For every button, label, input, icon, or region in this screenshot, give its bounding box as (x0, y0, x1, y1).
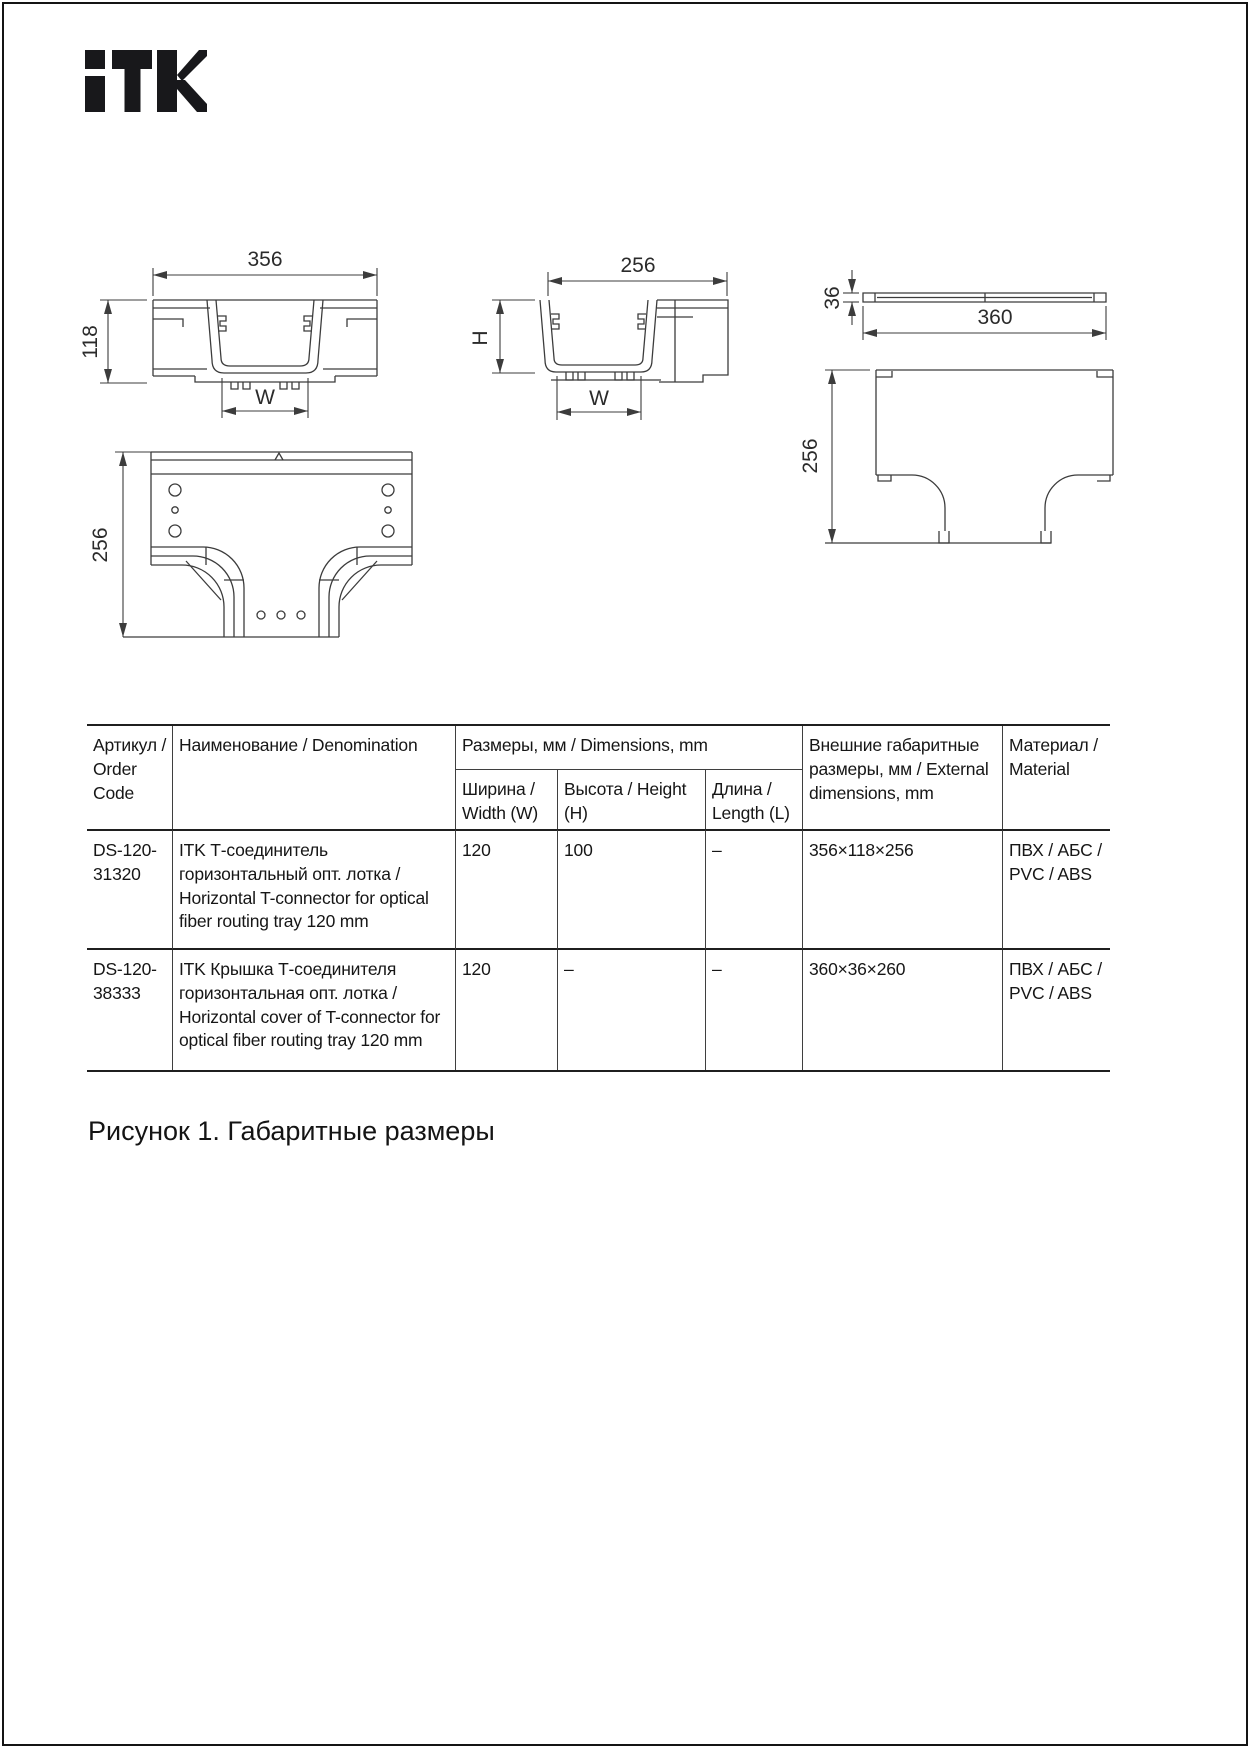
drawing-front-view: 356 118 W (85, 228, 415, 428)
logo-k-bar (157, 50, 177, 112)
dim-section-width: 256 (620, 254, 655, 277)
row-external: 360×36×260 (803, 950, 1003, 1070)
dim-front-height: 118 (79, 325, 102, 358)
dim-front-tray-width: W (255, 386, 275, 409)
col-header-dimensions-group: Размеры, мм / Dimensions, mm (456, 726, 803, 770)
dim-plan-depth: 256 (89, 527, 112, 562)
row-material: ПВХ / АБС / PVC / ABS (1003, 829, 1110, 950)
row-denomination: ITK Т-соединитель горизонтальный опт. ло… (173, 829, 456, 950)
col-header-order-code: Артикул / Order Code (87, 726, 173, 829)
row-material: ПВХ / АБС / PVC / ABS (1003, 950, 1110, 1070)
col-header-length: Длина / Length (L) (706, 770, 803, 829)
logo-k-upper-arm (177, 50, 207, 81)
datasheet-page: 356 118 W 256 (0, 0, 1250, 1748)
logo-i-dot (85, 50, 105, 69)
row-code: DS-120-38333 (87, 950, 173, 1070)
drawing-section-view: 256 H W (435, 228, 745, 428)
row-external: 356×118×256 (803, 829, 1003, 950)
dim-section-tray-width: W (589, 387, 609, 410)
dim-section-height: H (469, 330, 492, 345)
row-length: – (706, 950, 803, 1070)
col-header-material: Материал / Material (1003, 726, 1110, 829)
dim-cover-thickness: 36 (821, 286, 844, 309)
spec-table: Артикул / Order Code Наименование / Deno… (87, 724, 1110, 1072)
row-height: 100 (558, 829, 706, 950)
logo-i-stem (85, 76, 105, 112)
drawing-plan-view: 256 (85, 430, 430, 660)
row-width: 120 (456, 950, 558, 1070)
col-header-width: Ширина / Width (W) (456, 770, 558, 829)
row-height: – (558, 950, 706, 1070)
logo-t-stem (125, 66, 141, 112)
logo-k-lower-arm (177, 80, 207, 112)
row-length: – (706, 829, 803, 950)
col-header-height: Высота / Height (H) (558, 770, 706, 829)
itk-logo (85, 50, 207, 112)
col-header-denomination: Наименование / Denomination (173, 726, 456, 829)
dim-cover-width: 360 (977, 306, 1012, 329)
dim-cover-depth: 256 (799, 438, 822, 473)
dim-front-width: 356 (247, 248, 282, 271)
figure-caption: Рисунок 1. Габаритные размеры (88, 1116, 495, 1147)
drawing-cover-view: 36 360 256 (795, 240, 1140, 555)
row-denomination: ITK Крышка Т-соединителя горизонтальная … (173, 950, 456, 1070)
row-width: 120 (456, 829, 558, 950)
row-code: DS-120-31320 (87, 829, 173, 950)
col-header-external: Внешние габаритные размеры, мм / Externa… (803, 726, 1003, 829)
